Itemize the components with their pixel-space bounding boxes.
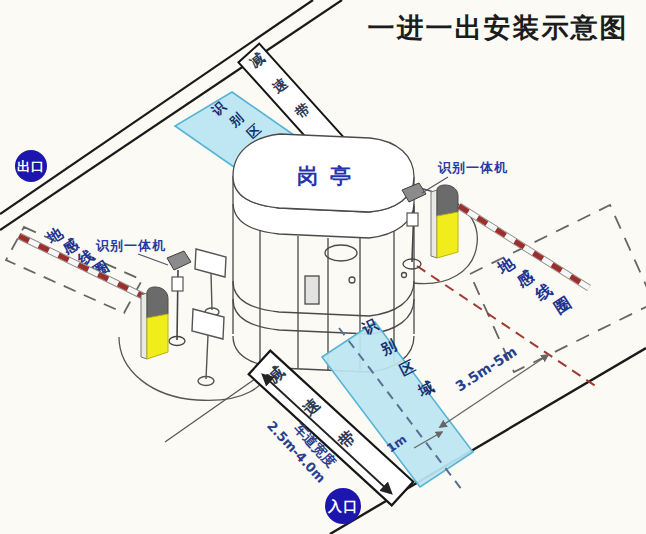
exit-badge-label: 出口 <box>17 159 45 174</box>
stop-line-dashed <box>417 266 600 389</box>
camera-label-right: 识别一体机 <box>422 160 508 193</box>
booth-label: 岗亭 <box>297 164 363 188</box>
diagram-canvas: 地感线圈 地感线圈 减速带 识别区域 <box>0 0 646 534</box>
installation-diagram: 地感线圈 地感线圈 减速带 识别区域 <box>0 0 646 534</box>
camera-head-left-icon <box>167 251 191 270</box>
info-signs <box>192 249 226 386</box>
entrance-badge: 入口 <box>325 488 361 524</box>
entrance-badge-label: 入口 <box>327 498 358 514</box>
camera-label-left-text: 识别一体机 <box>95 238 166 253</box>
barrier-gate-left <box>141 287 168 359</box>
coil-distance-label: 3.5m-5m <box>452 343 519 394</box>
camera-label-right-text: 识别一体机 <box>437 160 508 175</box>
sign-board-1 <box>195 249 226 277</box>
camera-unit-left <box>167 251 191 346</box>
page-title: 一进一出安装示意图 <box>368 12 629 43</box>
exit-badge: 出口 <box>15 150 47 182</box>
barrier-gate-right <box>431 185 458 258</box>
booth-interior-console <box>305 276 319 304</box>
